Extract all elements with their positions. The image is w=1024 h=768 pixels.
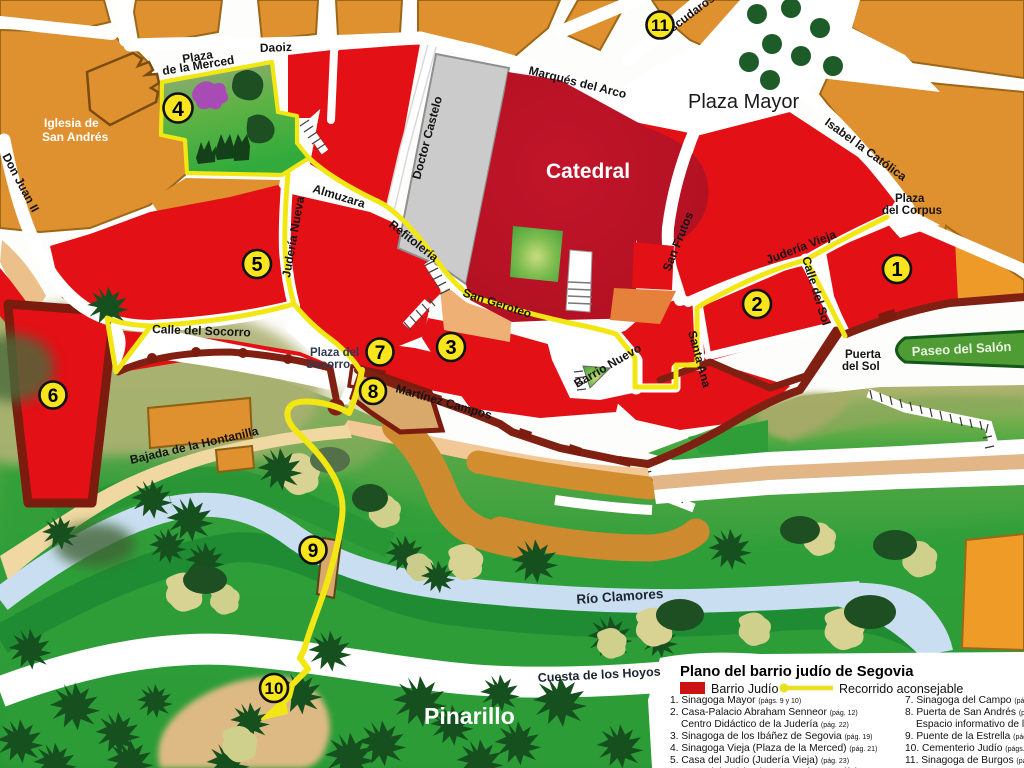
svg-text:2. Casa-Palacio Abraham Senneo: 2. Casa-Palacio Abraham Senneor (pág. 12… <box>670 707 858 718</box>
svg-text:3: 3 <box>445 337 456 359</box>
svg-text:del Corpus: del Corpus <box>882 205 942 217</box>
svg-text:Plaza: Plaza <box>895 193 925 205</box>
svg-text:San Andrés: San Andrés <box>42 130 109 144</box>
svg-text:Barrio Judío: Barrio Judío <box>711 682 778 696</box>
svg-text:Recorrido aconsejable: Recorrido aconsejable <box>839 682 963 696</box>
svg-text:5: 5 <box>251 254 262 276</box>
svg-text:8: 8 <box>368 382 379 403</box>
svg-text:Catedral: Catedral <box>546 160 630 183</box>
svg-text:7: 7 <box>375 343 386 364</box>
svg-text:6: 6 <box>48 386 59 407</box>
svg-text:9. Puente de la Estrella (pág.: 9. Puente de la Estrella (pág. 35) <box>905 731 1024 742</box>
svg-text:Plaza Mayor: Plaza Mayor <box>688 91 799 113</box>
svg-text:9: 9 <box>308 541 319 562</box>
svg-text:Plano del barrio judío de Sego: Plano del barrio judío de Segovia <box>680 664 914 680</box>
svg-text:Daoiz: Daoiz <box>260 40 292 55</box>
svg-text:Pinarillo: Pinarillo <box>424 703 515 729</box>
svg-text:1: 1 <box>891 259 902 281</box>
svg-text:Plaza del: Plaza del <box>310 347 359 359</box>
svg-text:8. Puerta de San Andrés (pág.: 8. Puerta de San Andrés (pág. 31) <box>905 707 1024 718</box>
svg-text:del Sol: del Sol <box>842 361 880 373</box>
svg-text:Socorro: Socorro <box>306 359 350 371</box>
svg-text:Espacio informativo de la: Espacio informativo de la <box>916 719 1024 730</box>
svg-text:7. Sinagoga del Campo (pág. 27: 7. Sinagoga del Campo (pág. 27) <box>905 695 1024 706</box>
svg-text:Iglesia de: Iglesia de <box>44 116 99 130</box>
svg-text:2: 2 <box>751 294 762 316</box>
svg-text:3. Sinagoga de los Ibáñez de S: 3. Sinagoga de los Ibáñez de Segovia (pá… <box>670 731 872 742</box>
svg-text:11. Sinagoga de Burgos (pág. 3: 11. Sinagoga de Burgos (pág. 38) <box>905 755 1024 766</box>
svg-text:10: 10 <box>265 679 284 698</box>
svg-text:4. Sinagoga Vieja (Plaza de la: 4. Sinagoga Vieja (Plaza de la Merced) (… <box>670 743 877 754</box>
svg-text:Puerta: Puerta <box>845 349 881 361</box>
svg-text:11: 11 <box>651 16 669 35</box>
svg-text:4: 4 <box>172 98 184 121</box>
